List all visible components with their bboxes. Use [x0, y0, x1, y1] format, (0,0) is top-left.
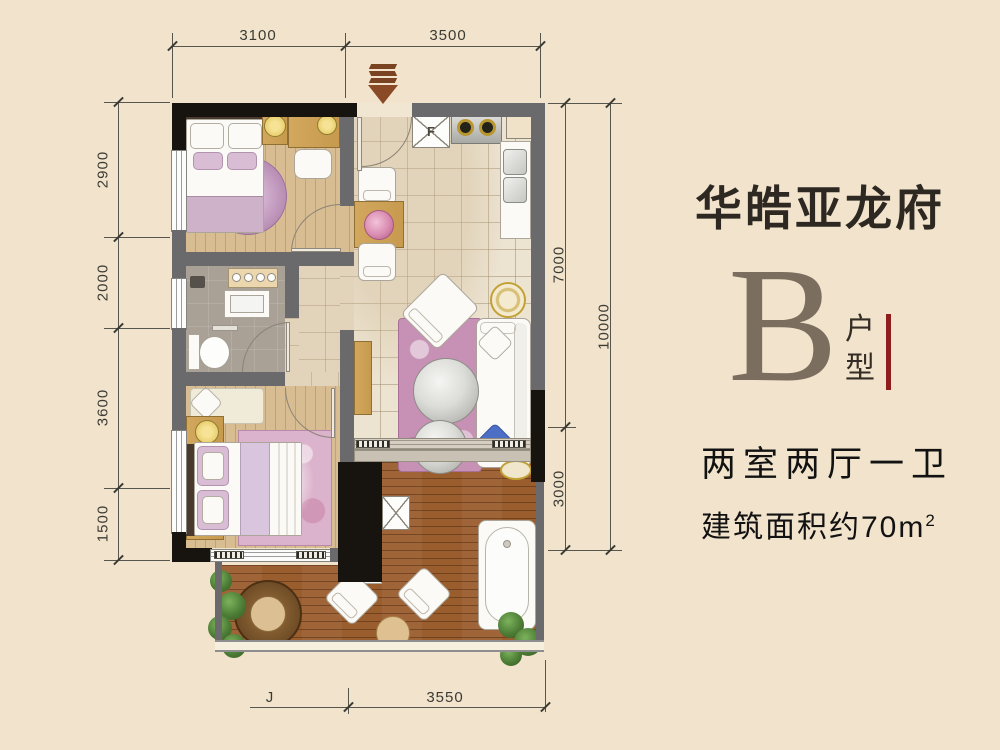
decor-gold-tray — [500, 460, 532, 480]
stove-burner — [479, 119, 496, 136]
bedroom1-lamp — [264, 115, 286, 137]
shower-fixture — [190, 276, 205, 288]
decor-gold-plate — [490, 282, 526, 318]
laundry-cabinet-wall — [338, 462, 382, 582]
stove-burner — [457, 119, 474, 136]
window — [171, 150, 187, 232]
wall — [172, 103, 357, 117]
bedroom1-blanket — [187, 196, 263, 232]
vanity-bowl — [256, 273, 265, 282]
bedroom2-pillow — [197, 490, 229, 530]
unit-type-label: 户型 — [842, 310, 878, 388]
bedroom2-pillow-inner — [202, 452, 224, 480]
bedroom1-door-leaf — [291, 248, 341, 252]
project-title: 华皓亚龙府 — [660, 170, 980, 239]
area-prefix: 建筑面积约 — [701, 511, 861, 544]
entry-arrow-bar — [369, 64, 397, 69]
dim-ext — [104, 560, 170, 561]
dining-chair — [358, 243, 396, 281]
wall — [531, 390, 545, 482]
bedroom2-door-leaf — [331, 388, 335, 438]
bedroom1-stool — [294, 149, 332, 179]
bedroom1-pink-pillow — [227, 152, 257, 170]
towel-bar — [212, 325, 238, 331]
fridge: F — [412, 115, 450, 148]
dim-label-left-4: 1500 — [95, 484, 112, 564]
dim-label-left-1: 2900 — [95, 130, 112, 210]
bedroom2-pillow — [197, 446, 229, 486]
wall — [340, 117, 354, 206]
dim-label-bottom-1: J — [240, 689, 300, 706]
accent-bar — [886, 314, 891, 390]
area-number: 70 — [861, 511, 898, 544]
insulation-hatch — [356, 440, 390, 448]
balcony-railing — [215, 640, 544, 652]
area-exponent: 2 — [925, 511, 936, 530]
entry-arrow-bar — [369, 78, 397, 83]
window — [171, 430, 187, 534]
bedroom1-door-gap-floor — [340, 206, 354, 252]
dim-label-top-2: 3500 — [388, 27, 508, 44]
bedroom2-door-gap-floor — [285, 372, 340, 386]
window — [171, 278, 187, 330]
bedroom1-desk-lamp — [317, 115, 337, 135]
bathtub-drain — [503, 540, 511, 548]
coffee-table-large — [413, 358, 479, 424]
entry-opening — [357, 103, 412, 117]
dining-chair — [358, 167, 396, 205]
bedroom1-pillow — [228, 123, 262, 149]
balcony-wall — [215, 562, 222, 646]
bedroom2-blanket — [240, 443, 270, 535]
kitchen-sink — [503, 177, 527, 203]
bathroom-door-leaf — [286, 322, 290, 372]
laundry-sink — [382, 496, 410, 530]
wall — [412, 103, 545, 117]
dim-line-left — [118, 102, 119, 560]
wall — [172, 372, 285, 386]
dim-label-bottom-2: 3550 — [395, 689, 495, 706]
bedroom1-pillow — [190, 123, 224, 149]
toilet-bowl — [199, 336, 230, 369]
entry-arrow-icon — [368, 85, 398, 104]
dim-line-bottom — [250, 707, 545, 708]
dim-label-left-2: 2000 — [95, 243, 112, 323]
insulation-hatch — [492, 440, 526, 448]
entry-arrow-bar — [369, 71, 397, 76]
corridor-floor — [299, 266, 340, 386]
wall — [531, 103, 545, 392]
wall — [340, 330, 354, 462]
dim-label-right-1: 7000 — [551, 225, 568, 305]
dim-ext — [348, 688, 349, 714]
dim-label-left-3: 3600 — [95, 368, 112, 448]
floorplan-poster: F R — [0, 0, 1000, 750]
balcony-wall — [536, 482, 544, 652]
kitchen-sink — [503, 149, 527, 175]
bedroom2-lamp — [195, 420, 219, 444]
layout-summary: 两室两厅一卫 — [701, 436, 953, 487]
unit-letter: B — [728, 242, 838, 407]
insulation-hatch — [296, 551, 326, 559]
wall — [172, 548, 212, 562]
corridor-floor-2 — [340, 266, 354, 330]
fridge-label: F — [413, 124, 449, 139]
dim-ext — [104, 488, 170, 489]
vanity-bowl — [232, 273, 241, 282]
dim-label-top-1: 3100 — [198, 27, 318, 44]
vanity-bowl — [267, 273, 276, 282]
dim-ext — [104, 328, 170, 329]
area-unit: m — [898, 511, 925, 544]
dim-line-top — [172, 46, 540, 47]
dim-ext — [104, 102, 170, 103]
bathroom-sink-basin — [230, 295, 264, 313]
wall — [172, 252, 354, 266]
hanging-chair-seat — [250, 596, 286, 632]
bedroom1-pink-pillow — [193, 152, 223, 170]
area-text: 建筑面积约70m2 — [701, 502, 937, 546]
vanity-bowl — [244, 273, 253, 282]
wall — [285, 266, 299, 318]
dim-label-right-outer: 10000 — [596, 282, 613, 372]
dim-label-right-2: 3000 — [551, 449, 568, 529]
bedroom2-sheet-folds — [272, 443, 301, 535]
wall — [172, 103, 186, 152]
balcony-threshold — [354, 450, 531, 462]
table-flowers — [364, 210, 394, 240]
tv-cabinet — [354, 341, 372, 415]
bedroom2-pillow-inner — [202, 496, 224, 524]
dim-ext — [104, 237, 170, 238]
insulation-hatch — [214, 551, 244, 559]
